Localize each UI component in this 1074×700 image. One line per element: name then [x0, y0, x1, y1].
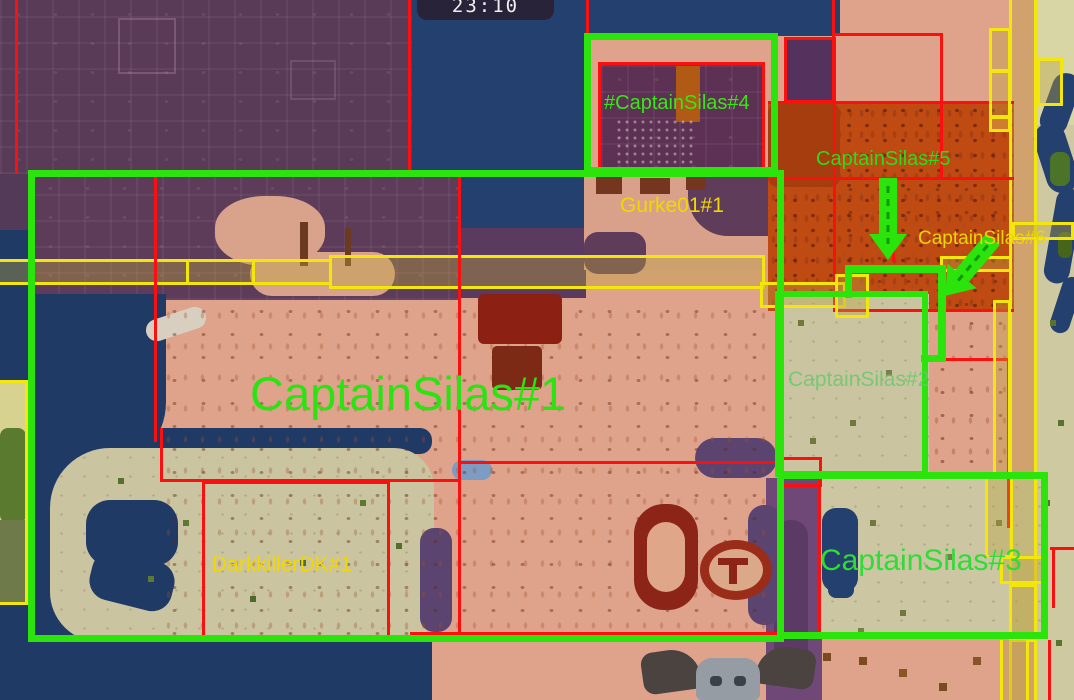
- terrain-oasis-1: [1050, 152, 1070, 186]
- claim-border-line: [408, 0, 411, 174]
- terrain-left-forest-patch: [0, 428, 26, 523]
- terrain-ocean-bottom-left: [0, 640, 432, 700]
- claim-label-captainsilas4: #CaptainSilas#4: [604, 92, 750, 115]
- claim-label-captainsilas6: CaptainSilas#6: [918, 228, 1046, 250]
- claim-border-line: [768, 101, 1014, 104]
- road-connector-vertical: [993, 300, 1011, 478]
- road-side-box-orange: [989, 116, 1011, 132]
- structure-skull-wing-right: [754, 643, 817, 691]
- structure-skull-eye-left: [710, 676, 722, 686]
- highlight-claim2-notch-top: [845, 265, 946, 273]
- structure-skull-wing-left: [639, 646, 702, 696]
- terrain-purple-structure-2: [290, 60, 336, 100]
- terrain-ocean-right-of-claim4: [770, 0, 840, 36]
- road-side-box: [1037, 58, 1063, 106]
- highlight-claim2-notch-left: [845, 273, 852, 298]
- claim-border-line: [586, 0, 589, 36]
- highlight-claim2-notch-link: [921, 355, 946, 362]
- claim-label-gurke01: Gurke01#1: [620, 194, 724, 218]
- map-vegetation-dots: [0, 0, 2, 2]
- claim-border-line: [768, 177, 1014, 180]
- terrain-ocean-above-claim4: [584, 0, 782, 35]
- terrain-left-olive-patch: [0, 520, 26, 605]
- road-south-segment: [1000, 640, 1029, 700]
- claim-border-line: [15, 0, 18, 174]
- road-stub-north: [940, 256, 1012, 272]
- road-side-box: [989, 70, 1011, 118]
- clock-hud: 23:10: [417, 0, 554, 20]
- claim-border-line: [940, 33, 943, 104]
- road-left-strip-top-border: [0, 380, 27, 383]
- claim-border-line: [1052, 550, 1055, 608]
- road-side-box: [989, 28, 1011, 72]
- claim-label-captainsilas1: CaptainSilas#1: [250, 366, 566, 421]
- claim-label-captainsilas3: CaptainSilas#3: [820, 544, 1022, 578]
- clock-time: 23:10: [452, 0, 519, 17]
- claim-border-line: [833, 33, 943, 36]
- terrain-dark-purple-region: [0, 0, 412, 174]
- claim-label-captainsilas5: CaptainSilas#5: [816, 148, 951, 171]
- claim-border-line: [832, 0, 835, 104]
- terrain-purple-structure-1: [118, 18, 176, 74]
- road-left-strip-bottom-border: [0, 602, 27, 605]
- terrain-purple-patch-ne: [784, 37, 836, 103]
- structure-skull-eye-right: [734, 676, 746, 686]
- claim-border-line: [892, 178, 895, 262]
- claim-label-darkkillerdk: DarkkillerDK#1: [212, 553, 352, 577]
- claim-border-line: [1048, 640, 1051, 700]
- claim-label-captainsilas2: CaptainSilas#2: [788, 368, 929, 392]
- highlight-claim2-notch-right: [938, 265, 946, 362]
- structure-skull-head: [696, 658, 760, 700]
- map-canvas[interactable]: 23:10 #CaptainSilas#4 Gurke01#1 CaptainS…: [0, 0, 1074, 700]
